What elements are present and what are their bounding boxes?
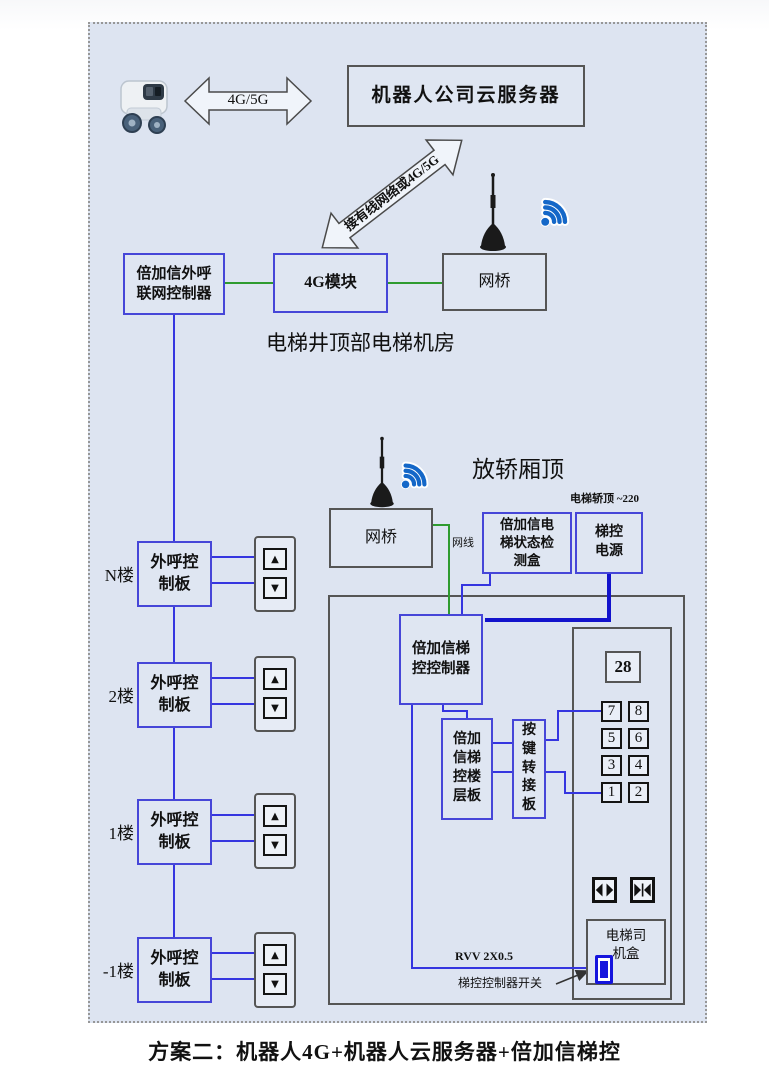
- car-top-caption: 放轿厢顶: [458, 456, 578, 485]
- outcall-board-1: 外呼控 制板: [137, 799, 212, 865]
- up-button-icon: ▲: [263, 668, 287, 690]
- floor-label-1: 1楼: [88, 823, 134, 844]
- down-button-icon: ▼: [263, 834, 287, 856]
- outcall-network-controller-box: 倍加信外呼 联网控制器: [123, 253, 225, 315]
- outcall-board-2: 外呼控 制板: [137, 662, 212, 728]
- rvv-cable-label: RVV 2X0.5: [455, 949, 530, 964]
- cop-button-4: 4: [628, 755, 649, 776]
- up-button-icon: ▲: [263, 548, 287, 570]
- floor-display: 28: [605, 651, 641, 683]
- control-controller-box: 倍加信梯 控控制器: [399, 614, 483, 705]
- cop-button-2: 2: [628, 782, 649, 803]
- floor-board-box: 倍加 信梯 控楼 层板: [441, 718, 493, 820]
- hall-button-panel-m1: ▲ ▼: [254, 932, 296, 1008]
- cop-button-6: 6: [628, 728, 649, 749]
- robot-icon: [114, 78, 176, 136]
- bridge1-box: 网桥: [442, 253, 547, 311]
- key-adapter-box: 按 键 转 接 板: [512, 719, 546, 819]
- outcall-board-n: 外呼控 制板: [137, 541, 212, 607]
- control-power-box: 梯控 电源: [575, 512, 643, 574]
- hall-button-panel-n: ▲ ▼: [254, 536, 296, 612]
- wifi-icon: [531, 192, 575, 236]
- cop-button-grid: 7 8 5 6 3 4 1 2: [601, 701, 649, 803]
- hall-button-panel-2: ▲ ▼: [254, 656, 296, 732]
- up-button-icon: ▲: [263, 805, 287, 827]
- switch-label: 梯控控制器开关: [458, 976, 558, 991]
- cop-button-8: 8: [628, 701, 649, 722]
- floor-label-m1: -1楼: [84, 961, 134, 982]
- down-button-icon: ▼: [263, 577, 287, 599]
- power-switch-icon: [595, 955, 613, 984]
- bridge2-box: 网桥: [329, 508, 433, 568]
- floor-label-2: 2楼: [88, 686, 134, 707]
- down-button-icon: ▼: [263, 973, 287, 995]
- car-top-power-note: 电梯轿顶 ~220: [570, 493, 660, 507]
- door-open-icon: [592, 877, 617, 903]
- door-close-icon: [630, 877, 655, 903]
- floor-label-n: N楼: [88, 565, 134, 586]
- cloud-server-box: 机器人公司云服务器: [347, 65, 585, 127]
- scheme-caption: 方案二：机器人4G+机器人云服务器+倍加信梯控: [0, 1036, 769, 1066]
- cop-button-7: 7: [601, 701, 622, 722]
- cop-button-5: 5: [601, 728, 622, 749]
- cop-button-1: 1: [601, 782, 622, 803]
- up-button-icon: ▲: [263, 944, 287, 966]
- network-cable-label: 网线: [452, 537, 486, 551]
- module-4g-box: 4G模块: [273, 253, 388, 313]
- hall-button-panel-1: ▲ ▼: [254, 793, 296, 869]
- antenna-icon: [478, 171, 508, 253]
- outcall-board-m1: 外呼控 制板: [137, 937, 212, 1003]
- diagram-page: 4G/5G 接有线网络或4G/5G 机器人公司云服务器 倍加信外呼 联网控制器 …: [0, 0, 769, 1090]
- elevator-status-box: 倍加信电 梯状态检 测盒: [482, 512, 572, 574]
- machine-room-caption: 电梯井顶部电梯机房: [248, 330, 473, 356]
- robot-link-label: 4G/5G: [205, 91, 291, 110]
- down-button-icon: ▼: [263, 697, 287, 719]
- cop-button-3: 3: [601, 755, 622, 776]
- wifi-icon: [392, 456, 434, 498]
